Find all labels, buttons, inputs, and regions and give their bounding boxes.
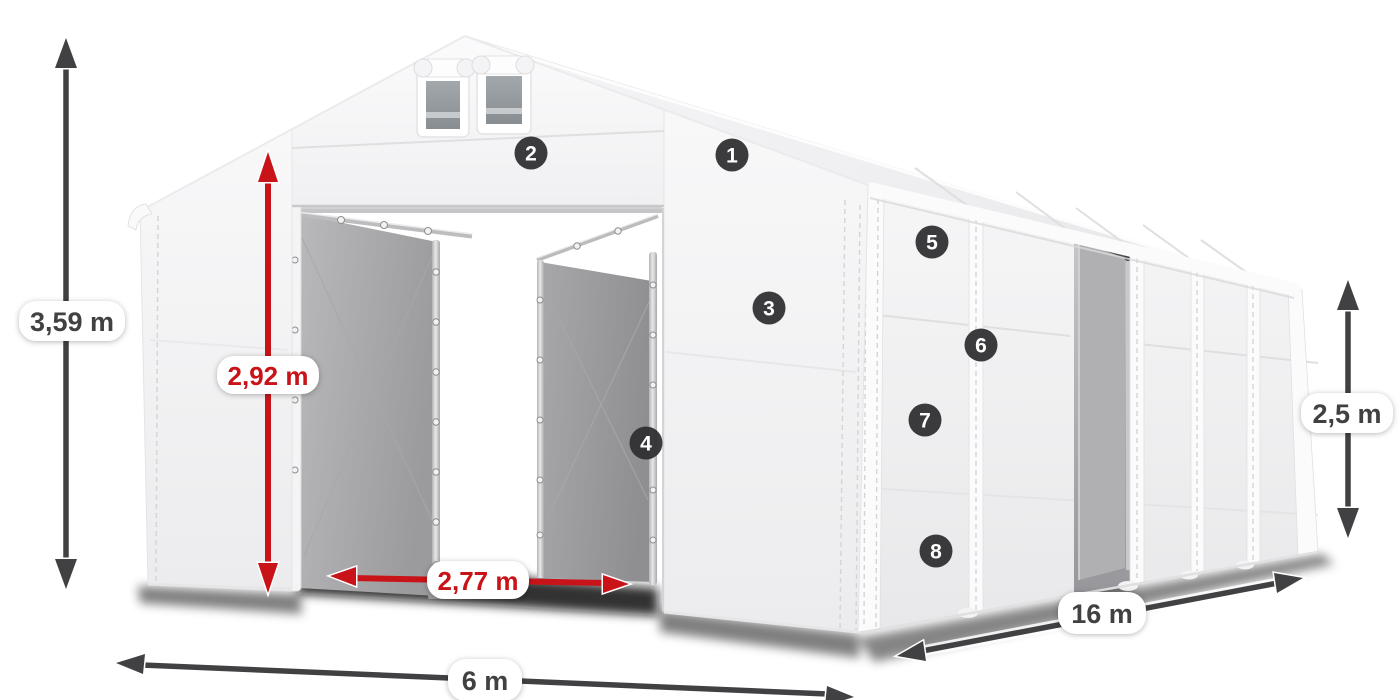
clamp <box>292 467 298 473</box>
clamp <box>433 319 439 325</box>
clamp <box>650 332 656 338</box>
clamp <box>537 417 543 423</box>
badge-8: 8 <box>920 535 953 568</box>
badge-3: 3 <box>753 292 786 325</box>
tent-dimensions-illustration: 1 2 3 4 5 6 7 8 3,59 m 2,92 m <box>0 0 1400 700</box>
clamp <box>537 532 543 538</box>
clamp <box>292 397 298 403</box>
badge-5-number: 5 <box>926 232 938 255</box>
rear-door-leaf <box>540 262 652 582</box>
clamp <box>574 243 580 249</box>
badge-2-number: 2 <box>525 143 537 166</box>
total-height-value: 3,59 m <box>30 307 114 337</box>
arrowhead-right-icon <box>825 686 854 700</box>
total-height-label: 3,59 m <box>19 301 125 341</box>
clamp <box>381 222 388 229</box>
badge-1: 1 <box>716 139 749 172</box>
door-height-value: 2,92 m <box>228 361 309 391</box>
badge-6: 6 <box>965 329 998 362</box>
side-length-label: 16 m <box>1058 592 1146 634</box>
vent-right-roll-cap <box>472 56 490 74</box>
arrowhead-left-icon <box>116 654 145 674</box>
rear-gable-tube <box>537 216 658 260</box>
badge-4: 4 <box>630 427 663 460</box>
clamp <box>537 357 543 363</box>
clamp <box>292 327 298 333</box>
tent-structure <box>128 36 1318 633</box>
vent-right-roll-cap <box>516 56 534 74</box>
side-door <box>1074 233 1133 595</box>
dimension-front-width: 6 m <box>116 654 854 700</box>
clamp <box>433 419 439 425</box>
vent-left-bar <box>426 112 460 118</box>
clamp <box>433 369 439 375</box>
badge-7: 7 <box>909 404 942 437</box>
vent-left-glass <box>426 81 460 129</box>
vent-right-bar <box>486 108 522 114</box>
clamp <box>615 228 621 234</box>
rear-gable-tube-highlight <box>537 214 658 258</box>
side-height-label: 2,5 m <box>1301 393 1393 433</box>
badge-3-number: 3 <box>763 298 775 321</box>
clamp <box>650 487 656 493</box>
clamp <box>433 469 439 475</box>
clamp <box>433 269 439 275</box>
front-interior <box>288 202 662 599</box>
side-height-value: 2,5 m <box>1312 399 1381 429</box>
badge-2: 2 <box>515 137 548 170</box>
arrowhead-down-icon <box>1337 508 1359 538</box>
front-width-value: 6 m <box>462 666 509 696</box>
badge-1-number: 1 <box>726 145 738 168</box>
arrowhead-right-icon <box>1274 573 1303 593</box>
arrowhead-down-icon <box>55 559 77 589</box>
side-length-value: 16 m <box>1071 599 1133 629</box>
clamp <box>537 477 543 483</box>
vent-right-glass <box>486 76 522 124</box>
front-width-label: 6 m <box>448 659 522 700</box>
clamp <box>650 537 656 543</box>
front-right-wall <box>664 110 868 633</box>
badge-8-number: 8 <box>930 541 942 564</box>
arrowhead-up-icon <box>1337 280 1359 310</box>
vent-left-roll-cap <box>414 59 432 77</box>
door-width-label: 2,77 m <box>427 561 529 599</box>
clamp <box>433 519 439 525</box>
clamp <box>650 382 656 388</box>
clamp <box>537 297 543 303</box>
arrowhead-up-icon <box>55 38 77 68</box>
clamp <box>292 257 298 263</box>
badge-7-number: 7 <box>919 410 931 433</box>
badge-6-number: 6 <box>975 335 987 358</box>
dimension-total-height: 3,59 m <box>19 38 125 589</box>
badge-5: 5 <box>916 226 949 259</box>
rear-jamb-pole <box>649 252 657 585</box>
tent-svg: 1 2 3 4 5 6 7 8 3,59 m 2,92 m <box>0 0 1400 700</box>
door-height-label: 2,92 m <box>217 356 319 394</box>
clamp <box>338 217 345 224</box>
side-door-leaf <box>1079 242 1125 580</box>
clamp <box>425 228 432 235</box>
badge-4-number: 4 <box>640 433 652 456</box>
door-width-value: 2,77 m <box>438 566 519 596</box>
clamp <box>650 282 656 288</box>
